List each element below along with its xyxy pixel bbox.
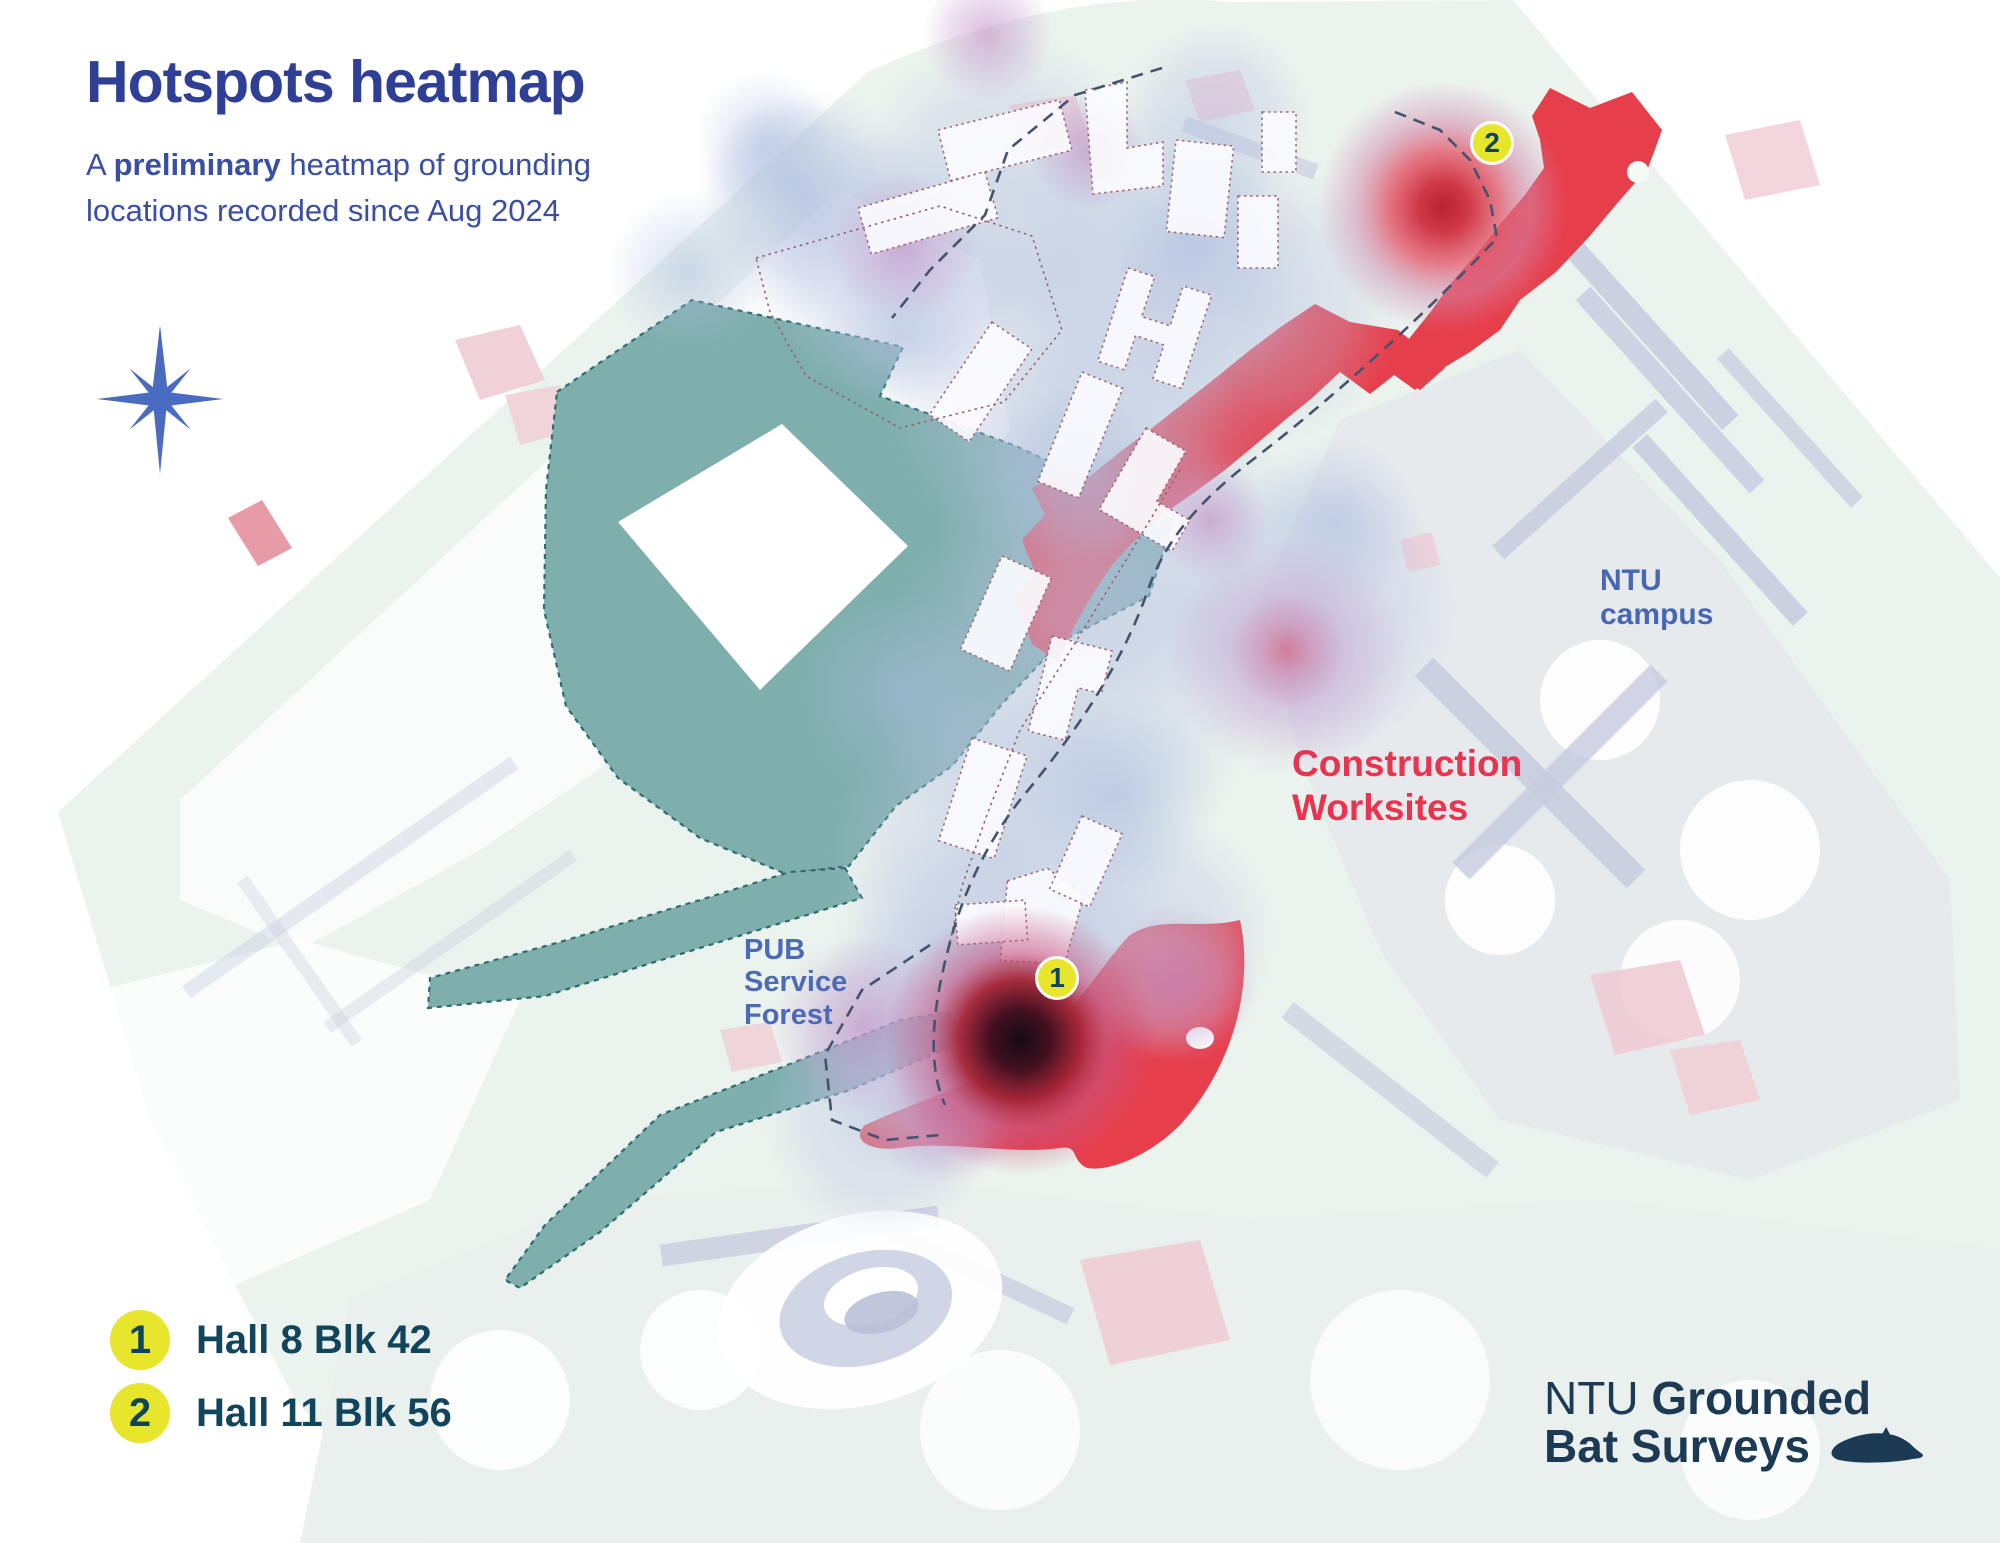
map-label-pub-service-forest: PUB Service Forest [744,934,847,1031]
hotspots-heatmap-infographic: Hotspots heatmap A preliminary heatmap o… [0,0,2000,1543]
map-marker-hall8: 1 [1035,956,1079,1000]
legend-item-hall8: 1 Hall 8 Blk 42 [110,1310,452,1370]
legend-marker-1: 1 [110,1310,170,1370]
heat-blob-hall8 [885,905,1155,1175]
legend-marker-2: 2 [110,1383,170,1443]
compass-star-icon [86,320,234,478]
map-label-ntu-campus: NTU campus [1600,564,1713,631]
map-marker-hall11: 2 [1470,121,1514,165]
page-title: Hotspots heatmap [86,48,591,116]
legend: 1 Hall 8 Blk 42 2 Hall 11 Blk 56 [110,1310,452,1456]
grounded-bat-icon [1826,1427,1930,1467]
logo-line-1: NTU Grounded [1544,1374,1930,1422]
brand-logo: NTU Grounded Bat Surveys [1544,1374,1930,1471]
header: Hotspots heatmap A preliminary heatmap o… [86,48,591,234]
legend-label: Hall 8 Blk 42 [196,1318,432,1363]
marker-number: 1 [1049,962,1065,994]
map-label-construction-worksites: Construction Worksites [1292,742,1522,831]
page-subtitle: A preliminary heatmap of groundinglocati… [86,142,591,234]
heat-blob-hall11 [1318,82,1568,332]
legend-label: Hall 11 Blk 56 [196,1391,452,1436]
logo-line-2: Bat Surveys [1544,1422,1930,1470]
marker-number: 2 [1484,127,1500,159]
legend-item-hall11: 2 Hall 11 Blk 56 [110,1383,452,1443]
